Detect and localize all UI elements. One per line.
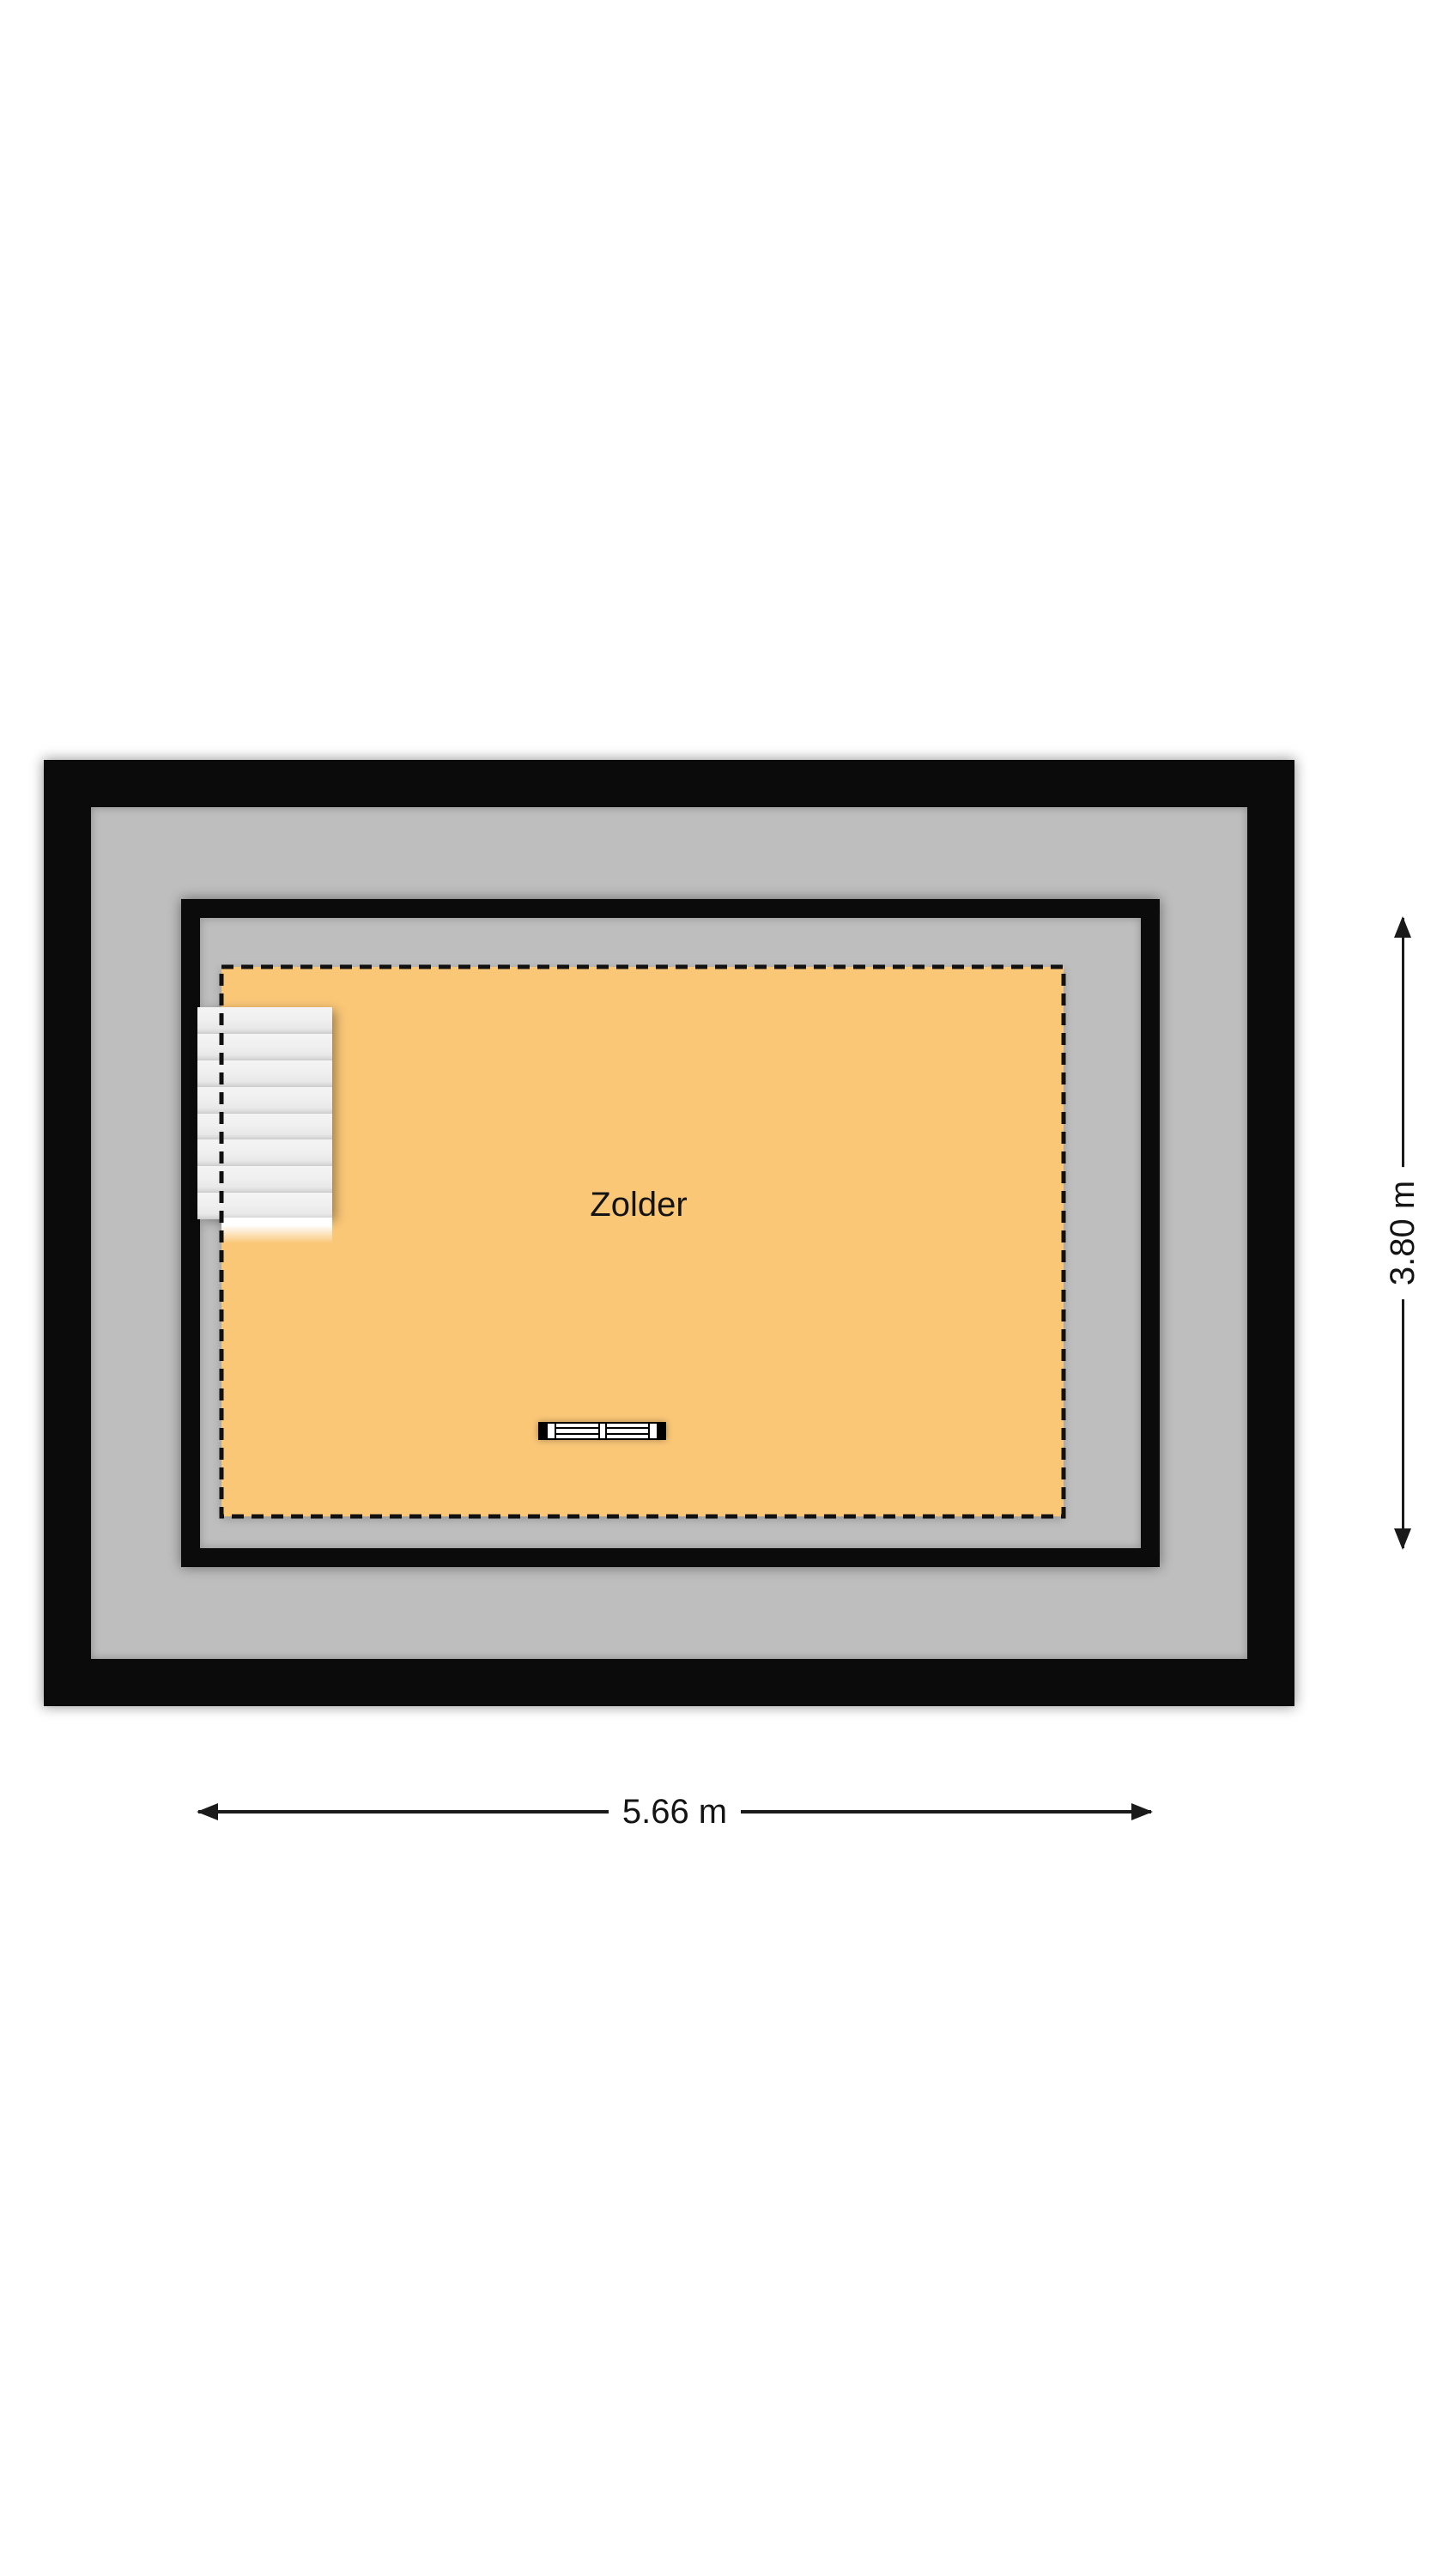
stairs-landing	[221, 1218, 332, 1243]
radiator-icon	[538, 1422, 666, 1440]
radiator-cell	[648, 1424, 657, 1438]
stair-tread	[197, 1034, 332, 1060]
arrow-left-icon	[197, 1803, 218, 1820]
radiator-fins	[607, 1424, 649, 1438]
stair-tread	[197, 1193, 332, 1219]
stair-tread	[197, 1166, 332, 1193]
radiator-end-cap	[540, 1424, 548, 1438]
room-label: Zolder	[467, 1184, 810, 1225]
stair-tread	[197, 1087, 332, 1114]
stair-tread	[197, 1114, 332, 1140]
radiator-divider	[598, 1424, 607, 1438]
dimension-width-label: 5.66 m	[609, 1793, 741, 1831]
arrow-right-icon	[1131, 1803, 1153, 1820]
dimension-width: 5.66 m	[197, 1793, 1153, 1831]
radiator-cell	[548, 1424, 556, 1438]
radiator-fins	[556, 1424, 598, 1438]
dimension-height-label: 3.80 m	[1384, 1167, 1422, 1299]
arrow-down-icon	[1394, 1528, 1411, 1550]
stairs-icon	[197, 1007, 332, 1219]
radiator-end-cap	[657, 1424, 664, 1438]
arrow-up-icon	[1394, 916, 1411, 938]
stair-tread	[197, 1060, 332, 1087]
stair-tread	[197, 1139, 332, 1166]
dimension-height: 3.80 m	[1384, 916, 1422, 1550]
stair-tread	[197, 1007, 332, 1034]
